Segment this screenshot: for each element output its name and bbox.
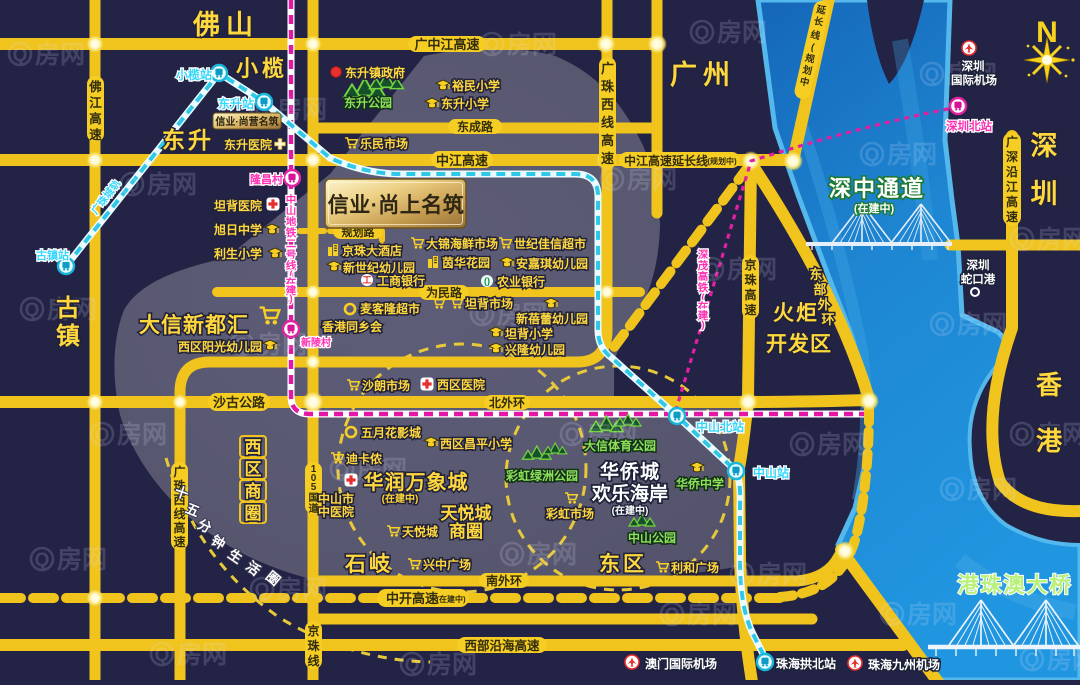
- svg-text:广: 广: [1006, 134, 1018, 149]
- svg-text:东升小学: 东升小学: [441, 96, 489, 111]
- svg-text:兴中广场: 兴中广场: [423, 557, 471, 572]
- svg-text:石岐: 石岐: [344, 552, 393, 576]
- svg-text:速: 速: [89, 127, 102, 142]
- svg-text:西部沿海高速: 西部沿海高速: [464, 638, 540, 653]
- svg-text:中山公园: 中山公园: [628, 530, 676, 545]
- svg-text:西区医院: 西区医院: [437, 377, 485, 392]
- svg-text:世纪佳信超市: 世纪佳信超市: [514, 236, 586, 251]
- svg-text:5: 5: [311, 482, 317, 493]
- svg-text:欢乐海岸: 欢乐海岸: [591, 482, 668, 505]
- svg-text:广: 广: [601, 61, 614, 76]
- svg-text:蛇口港: 蛇口港: [961, 272, 996, 286]
- svg-text:线: 线: [601, 115, 614, 130]
- svg-text:旭日中学: 旭日中学: [213, 222, 262, 237]
- svg-text:速: 速: [601, 151, 614, 166]
- svg-text:西区阳光幼儿园: 西区阳光幼儿园: [178, 339, 262, 354]
- svg-text:环: 环: [821, 312, 834, 327]
- svg-text:高: 高: [173, 520, 185, 535]
- svg-text:速: 速: [173, 534, 185, 549]
- svg-text:麦客隆超市: 麦客隆超市: [360, 301, 420, 316]
- svg-text:广州: 广州: [670, 60, 736, 90]
- svg-text:部: 部: [813, 282, 826, 297]
- svg-text:兴隆幼儿园: 兴隆幼儿园: [505, 342, 565, 357]
- svg-text:中山北站: 中山北站: [696, 419, 744, 434]
- svg-text:东: 东: [809, 267, 822, 282]
- svg-text:东升公园: 东升公园: [344, 95, 392, 110]
- svg-text:中医院: 中医院: [318, 504, 354, 519]
- svg-text:裕民小学: 裕民小学: [451, 78, 500, 93]
- svg-text:古: 古: [56, 295, 80, 322]
- svg-text:古镇站: 古镇站: [36, 248, 69, 262]
- svg-text:广: 广: [173, 464, 185, 479]
- svg-text:深中通道: 深中通道: [829, 176, 925, 201]
- svg-text:沙朗市场: 沙朗市场: [362, 378, 410, 393]
- svg-text:南外环: 南外环: [486, 573, 522, 588]
- svg-text:中山站: 中山站: [753, 465, 789, 480]
- svg-text:坦背医院: 坦背医院: [214, 198, 262, 213]
- svg-text:安嘉琪幼儿园: 安嘉琪幼儿园: [516, 256, 588, 271]
- svg-text:速: 速: [744, 302, 756, 317]
- svg-text:圈: 圈: [245, 504, 262, 523]
- svg-text:天悦城: 天悦城: [441, 503, 492, 523]
- svg-text:澳门国际机场: 澳门国际机场: [645, 656, 717, 671]
- svg-text:佛: 佛: [88, 79, 102, 94]
- svg-text:京: 京: [307, 623, 319, 638]
- svg-text:坦背市场: 坦背市场: [465, 296, 513, 311]
- svg-text:东升镇政府: 东升镇政府: [345, 65, 405, 80]
- svg-text:中山市: 中山市: [318, 491, 354, 506]
- svg-text:东升: 东升: [162, 127, 214, 153]
- svg-text:高: 高: [89, 111, 102, 126]
- svg-text:大锦海鲜市场: 大锦海鲜市场: [426, 236, 498, 251]
- svg-text:国: 国: [309, 492, 319, 504]
- svg-text:): ): [289, 293, 293, 305]
- svg-text:区: 区: [245, 460, 262, 479]
- svg-text:小榄站: 小榄站: [176, 67, 212, 82]
- svg-text:香港同乡会: 香港同乡会: [321, 319, 383, 334]
- svg-text:华润万象城: 华润万象城: [364, 470, 469, 494]
- svg-text:京珠大酒店: 京珠大酒店: [342, 243, 402, 258]
- svg-text:信业·尚营名筑: 信业·尚营名筑: [215, 115, 278, 128]
- svg-text:乐民市场: 乐民市场: [360, 136, 408, 151]
- svg-text:): ): [701, 319, 705, 331]
- svg-text:商: 商: [245, 481, 262, 501]
- svg-text:深: 深: [1031, 131, 1058, 161]
- svg-text:国际机场: 国际机场: [951, 73, 997, 87]
- svg-text:圳: 圳: [1031, 179, 1058, 209]
- svg-text:高: 高: [601, 133, 614, 148]
- svg-text:深圳: 深圳: [967, 258, 990, 272]
- svg-text:高: 高: [744, 287, 756, 302]
- svg-text:珠海九州机场: 珠海九州机场: [868, 657, 940, 672]
- svg-text:新蓓蕾幼儿园: 新蓓蕾幼儿园: [516, 311, 588, 326]
- svg-text:珠: 珠: [307, 638, 320, 653]
- svg-text:大信体育公园: 大信体育公园: [584, 438, 656, 453]
- svg-text:港珠澳大桥: 港珠澳大桥: [958, 573, 1073, 597]
- svg-text:深: 深: [1006, 149, 1018, 164]
- svg-text:香: 香: [1036, 370, 1062, 400]
- svg-text:彩虹绿洲公园: 彩虹绿洲公园: [505, 468, 578, 483]
- svg-text:五月花影城: 五月花影城: [361, 425, 421, 440]
- svg-text:开发区: 开发区: [766, 332, 832, 356]
- svg-text:(规划中): (规划中): [707, 156, 737, 166]
- svg-text:新陵村: 新陵村: [301, 336, 331, 349]
- svg-text:华侨城: 华侨城: [600, 460, 660, 483]
- svg-text:利和广场: 利和广场: [671, 560, 719, 575]
- svg-text:速: 速: [1006, 209, 1018, 224]
- svg-text:江: 江: [89, 95, 102, 110]
- svg-text:农业银行: 农业银行: [496, 274, 545, 289]
- svg-text:高: 高: [1006, 194, 1018, 209]
- svg-text:东升医院: 东升医院: [224, 137, 272, 152]
- svg-text:工商银行: 工商银行: [377, 273, 425, 288]
- svg-text:广中江高速: 广中江高速: [414, 37, 479, 52]
- svg-text:镇: 镇: [56, 323, 80, 350]
- svg-text:珠海拱北站: 珠海拱北站: [776, 656, 836, 671]
- svg-text:(在建中): (在建中): [436, 594, 466, 604]
- svg-text:珠: 珠: [744, 272, 757, 287]
- svg-text:新世纪幼儿园: 新世纪幼儿园: [343, 260, 415, 275]
- svg-text:东成路: 东成路: [457, 119, 494, 134]
- svg-text:为民路: 为民路: [426, 285, 463, 300]
- svg-text:北外环: 北外环: [489, 395, 525, 410]
- svg-text:中开高速: 中开高速: [386, 591, 438, 606]
- svg-text:江: 江: [1006, 179, 1018, 194]
- svg-text:商圈: 商圈: [449, 521, 483, 541]
- svg-text:信业·尚上名筑: 信业·尚上名筑: [328, 193, 465, 217]
- svg-text:隆昌村: 隆昌村: [250, 172, 283, 186]
- svg-text:小榄: 小榄: [236, 56, 288, 81]
- svg-text:(在建中): (在建中): [382, 492, 419, 505]
- svg-text:珠: 珠: [601, 79, 615, 94]
- svg-text:天悦城: 天悦城: [402, 524, 438, 539]
- svg-text:中江高速延长线: 中江高速延长线: [624, 153, 708, 168]
- svg-text:东区: 东区: [599, 552, 647, 576]
- svg-text:深圳北站: 深圳北站: [946, 119, 992, 133]
- svg-text:深圳: 深圳: [962, 59, 985, 73]
- svg-text:线: 线: [307, 653, 319, 668]
- svg-text:火炬: 火炬: [773, 302, 819, 325]
- svg-text:华侨中学: 华侨中学: [676, 476, 724, 491]
- svg-text:大信新都汇: 大信新都汇: [139, 313, 249, 337]
- svg-text:东升站: 东升站: [218, 96, 254, 111]
- svg-text:道: 道: [309, 502, 319, 515]
- svg-text:沙古公路: 沙古公路: [213, 395, 266, 410]
- svg-text:(在建中): (在建中): [612, 504, 649, 517]
- svg-text:港: 港: [1036, 426, 1063, 456]
- svg-text:西: 西: [601, 97, 614, 112]
- svg-text:中江高速: 中江高速: [436, 153, 488, 168]
- svg-text:茵华花园: 茵华花园: [442, 255, 490, 270]
- svg-text:西: 西: [245, 438, 262, 457]
- svg-text:佛山: 佛山: [192, 10, 259, 40]
- svg-text:利生小学: 利生小学: [214, 246, 262, 261]
- svg-text:(在建中): (在建中): [854, 201, 895, 215]
- svg-text:坦背小学: 坦背小学: [505, 326, 553, 341]
- svg-text:沿: 沿: [1005, 165, 1018, 179]
- svg-text:迪卡侬: 迪卡侬: [346, 451, 383, 466]
- svg-text:西区昌平小学: 西区昌平小学: [440, 436, 512, 451]
- svg-text:彩虹市场: 彩虹市场: [545, 506, 594, 521]
- svg-text:京: 京: [744, 257, 756, 272]
